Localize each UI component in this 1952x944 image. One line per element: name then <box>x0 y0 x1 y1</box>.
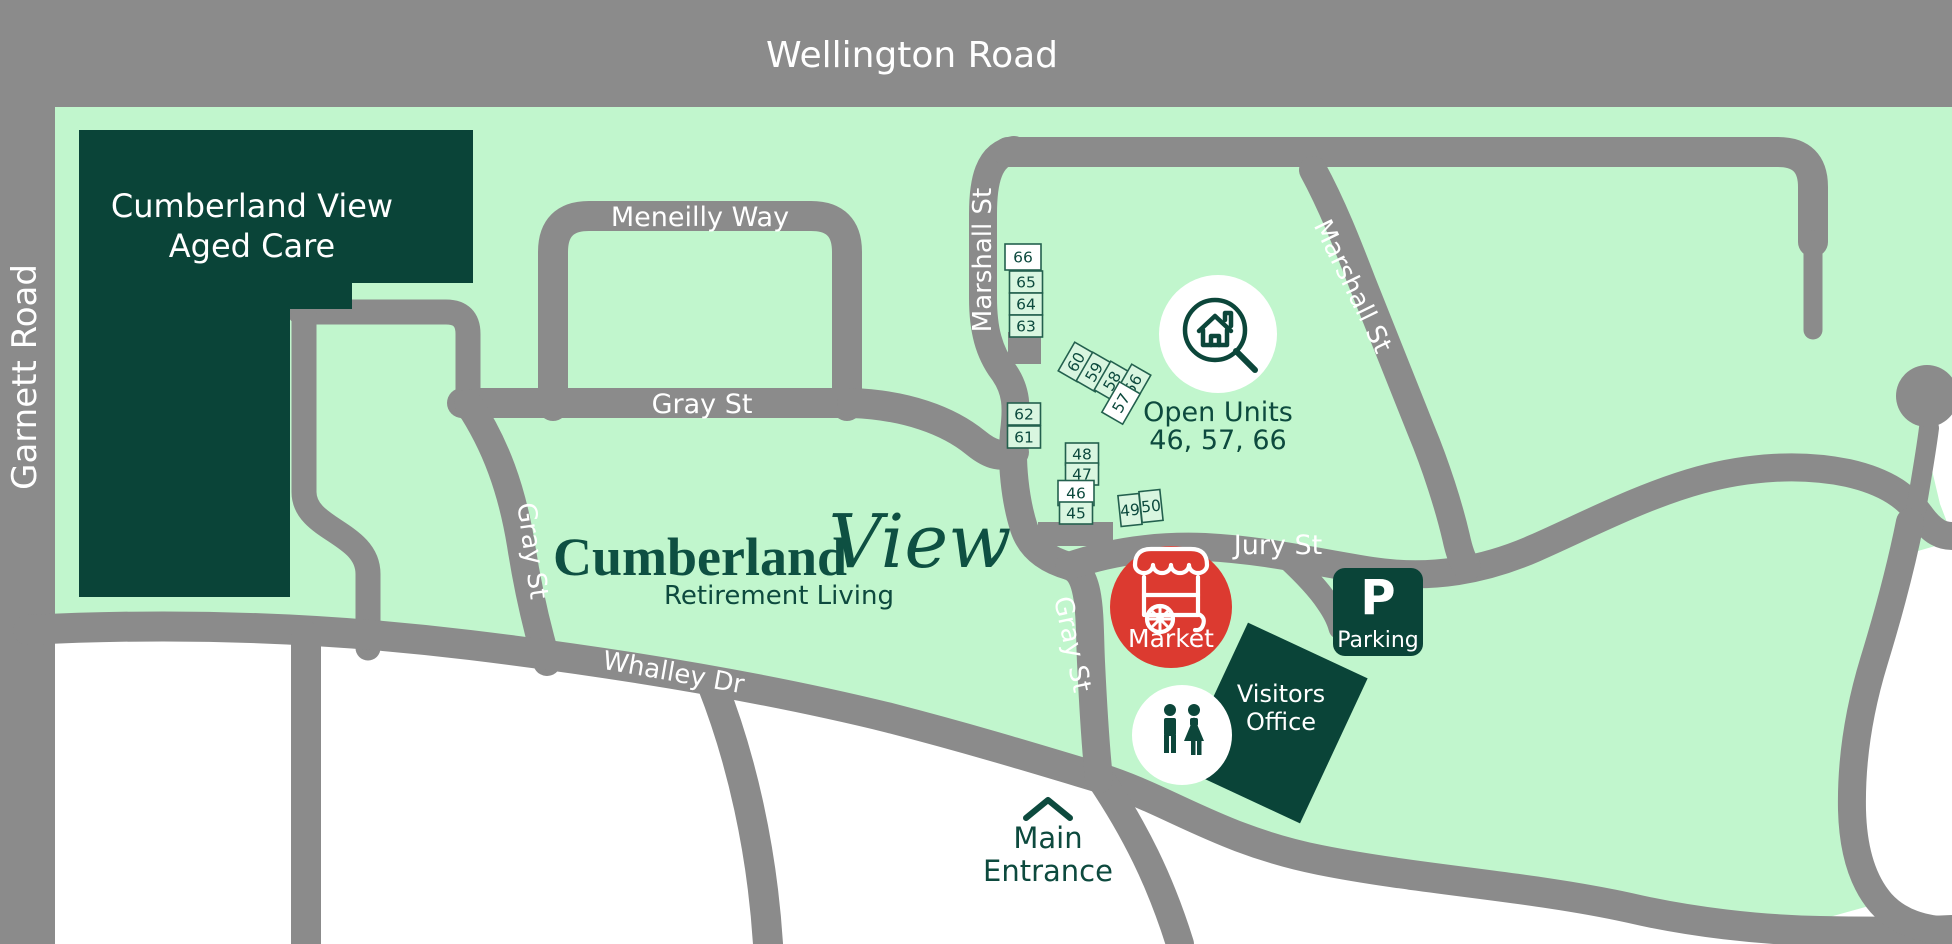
unit-box-49: 49 <box>1118 493 1142 526</box>
unit-box-50: 50 <box>1139 489 1163 522</box>
wellington-road-label: Wellington Road <box>766 35 1058 76</box>
svg-text:48: 48 <box>1072 446 1092 464</box>
svg-text:63: 63 <box>1016 318 1036 336</box>
meneilly-way-label: Meneilly Way <box>611 202 789 233</box>
unit-box-63: 63 <box>1010 315 1043 337</box>
logo-tagline: Retirement Living <box>664 581 894 611</box>
open-units-numbers: 46, 57, 66 <box>1149 425 1286 456</box>
visitors-people-landmark <box>1132 685 1232 785</box>
visitors-office-label-line2: Office <box>1246 708 1316 736</box>
jury-st-label: Jury St <box>1232 530 1322 561</box>
svg-text:62: 62 <box>1014 406 1034 424</box>
aged-care-label-line1: Cumberland View <box>111 187 393 225</box>
aged-care-label-line2: Aged Care <box>169 227 335 265</box>
svg-text:61: 61 <box>1014 429 1034 447</box>
unit-box-45: 45 <box>1060 502 1093 524</box>
parking-initial: P <box>1360 570 1395 626</box>
svg-text:46: 46 <box>1066 485 1086 503</box>
market-label: Market <box>1128 624 1214 653</box>
unit-box-66: 66 <box>1005 244 1041 270</box>
svg-text:45: 45 <box>1066 505 1086 523</box>
main-entrance-label-line2: Entrance <box>983 854 1113 888</box>
svg-text:65: 65 <box>1016 274 1036 292</box>
main-entrance-label-line1: Main <box>1013 821 1082 855</box>
site-map: Cumberland View Aged Care Visitors Offic… <box>0 0 1952 944</box>
svg-text:49: 49 <box>1119 501 1141 521</box>
site-map-page: Cumberland View Aged Care Visitors Offic… <box>0 0 1952 944</box>
unit-box-62: 62 <box>1008 403 1041 425</box>
open-units-title: Open Units <box>1143 397 1293 428</box>
market-landmark: Market <box>1110 546 1232 668</box>
svg-text:66: 66 <box>1013 249 1033 267</box>
unit-box-65: 65 <box>1010 271 1043 293</box>
unit-box-61: 61 <box>1008 426 1041 448</box>
logo-name-script: View <box>829 499 1012 585</box>
unit-45-driveway-stub <box>1038 522 1113 546</box>
garnett-road-label: Garnett Road <box>5 264 45 490</box>
logo-name-serif: Cumberland <box>553 527 847 587</box>
gray-st-label: Gray St <box>652 389 753 420</box>
unit-box-64: 64 <box>1010 293 1043 315</box>
culdesac-stem <box>1916 428 1929 510</box>
parking-label: Parking <box>1337 628 1419 653</box>
svg-text:50: 50 <box>1140 497 1162 517</box>
visitors-office-label-line1: Visitors <box>1237 680 1325 708</box>
svg-text:64: 64 <box>1016 296 1036 314</box>
marshall-st-west-label: Marshall St <box>968 188 998 332</box>
people-circle <box>1132 685 1232 785</box>
unit-box-48: 48 <box>1066 443 1099 465</box>
